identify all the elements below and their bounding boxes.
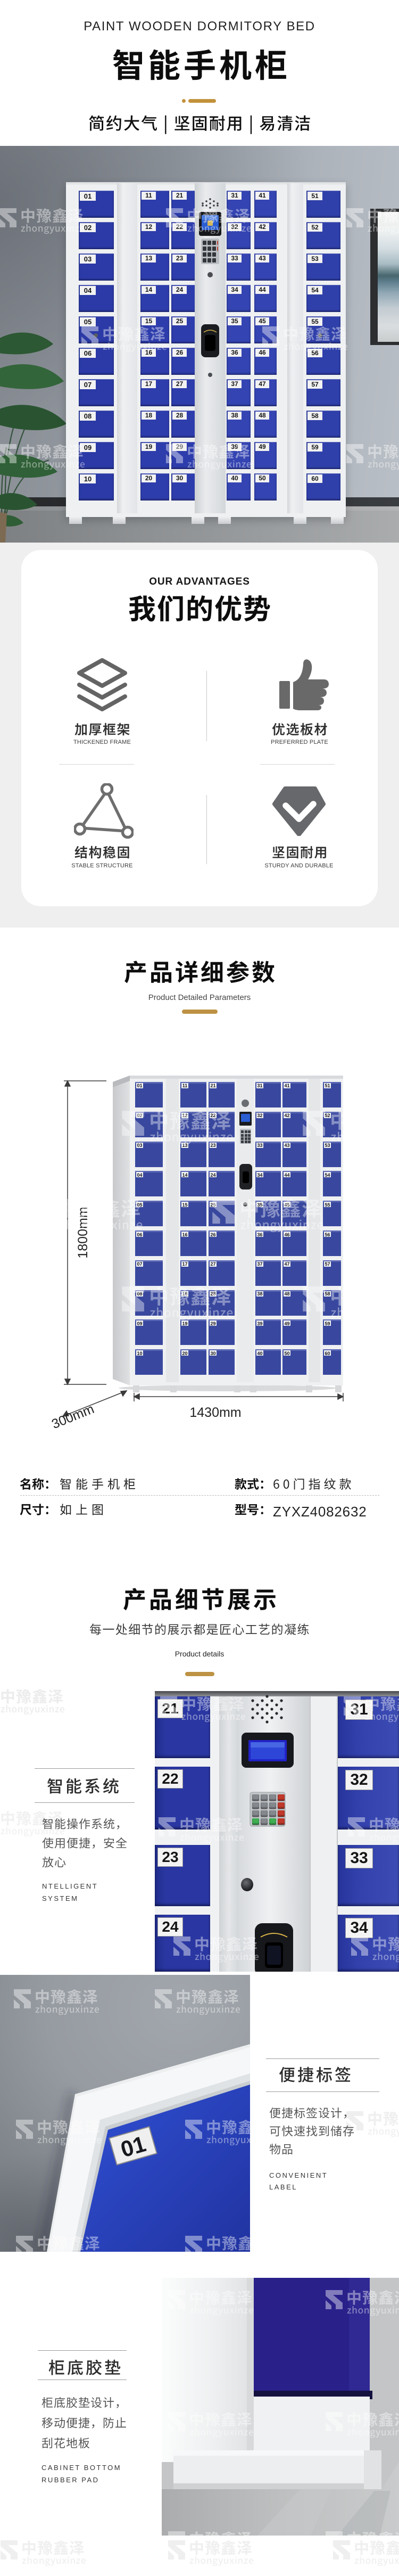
svg-text:44: 44 bbox=[284, 1172, 289, 1178]
svg-text:50: 50 bbox=[284, 1351, 289, 1356]
svg-text:24: 24 bbox=[210, 1172, 215, 1178]
svg-text:14: 14 bbox=[182, 1172, 187, 1178]
svg-text:47: 47 bbox=[284, 1261, 289, 1267]
svg-text:09: 09 bbox=[137, 1321, 142, 1326]
svg-text:42: 42 bbox=[284, 1113, 289, 1118]
svg-text:56: 56 bbox=[325, 1232, 330, 1237]
svg-text:28: 28 bbox=[210, 1291, 215, 1297]
svg-text:11: 11 bbox=[182, 1083, 188, 1088]
svg-text:12: 12 bbox=[182, 1113, 187, 1118]
svg-text:07: 07 bbox=[137, 1261, 142, 1267]
svg-text:1800mm: 1800mm bbox=[76, 1207, 90, 1258]
svg-text:33: 33 bbox=[257, 1143, 262, 1148]
svg-text:45: 45 bbox=[284, 1202, 289, 1208]
svg-text:54: 54 bbox=[325, 1172, 330, 1178]
svg-text:26: 26 bbox=[210, 1232, 215, 1237]
svg-text:51: 51 bbox=[325, 1083, 330, 1088]
svg-text:18: 18 bbox=[182, 1291, 187, 1297]
svg-text:04: 04 bbox=[137, 1172, 142, 1178]
svg-text:15: 15 bbox=[182, 1202, 187, 1208]
svg-text:34: 34 bbox=[257, 1172, 262, 1178]
svg-text:31: 31 bbox=[257, 1083, 262, 1088]
svg-text:46: 46 bbox=[284, 1232, 289, 1237]
svg-text:02: 02 bbox=[137, 1113, 142, 1118]
svg-text:29: 29 bbox=[210, 1321, 215, 1326]
svg-text:30: 30 bbox=[210, 1351, 215, 1356]
svg-text:03: 03 bbox=[137, 1143, 142, 1148]
svg-text:36: 36 bbox=[257, 1232, 262, 1237]
svg-text:27: 27 bbox=[210, 1261, 215, 1267]
svg-text:59: 59 bbox=[325, 1321, 330, 1326]
svg-text:21: 21 bbox=[210, 1083, 215, 1088]
svg-text:57: 57 bbox=[325, 1261, 330, 1267]
svg-text:60: 60 bbox=[325, 1351, 330, 1356]
svg-text:01: 01 bbox=[137, 1083, 142, 1088]
svg-text:32: 32 bbox=[257, 1113, 262, 1118]
svg-text:37: 37 bbox=[257, 1261, 262, 1267]
svg-text:06: 06 bbox=[137, 1232, 142, 1237]
svg-text:13: 13 bbox=[182, 1143, 187, 1148]
svg-text:08: 08 bbox=[137, 1291, 142, 1297]
svg-text:300mm: 300mm bbox=[49, 1401, 96, 1432]
svg-text:23: 23 bbox=[210, 1143, 215, 1148]
svg-text:20: 20 bbox=[182, 1351, 187, 1356]
svg-text:58: 58 bbox=[325, 1291, 330, 1297]
svg-text:55: 55 bbox=[325, 1202, 330, 1208]
svg-text:1430mm: 1430mm bbox=[189, 1405, 241, 1420]
svg-text:48: 48 bbox=[284, 1291, 289, 1297]
svg-text:39: 39 bbox=[257, 1321, 262, 1326]
svg-text:16: 16 bbox=[182, 1232, 187, 1237]
svg-text:52: 52 bbox=[325, 1113, 330, 1118]
svg-text:35: 35 bbox=[257, 1202, 262, 1208]
svg-text:41: 41 bbox=[284, 1083, 289, 1088]
svg-text:10: 10 bbox=[137, 1351, 142, 1356]
svg-text:43: 43 bbox=[284, 1143, 289, 1148]
svg-text:25: 25 bbox=[210, 1202, 215, 1208]
svg-text:40: 40 bbox=[257, 1351, 262, 1356]
svg-text:05: 05 bbox=[137, 1202, 142, 1208]
svg-text:17: 17 bbox=[182, 1261, 187, 1267]
svg-text:19: 19 bbox=[182, 1321, 187, 1326]
svg-text:22: 22 bbox=[210, 1113, 215, 1118]
svg-text:53: 53 bbox=[325, 1143, 330, 1148]
svg-text:49: 49 bbox=[284, 1321, 289, 1326]
svg-text:38: 38 bbox=[257, 1291, 262, 1297]
